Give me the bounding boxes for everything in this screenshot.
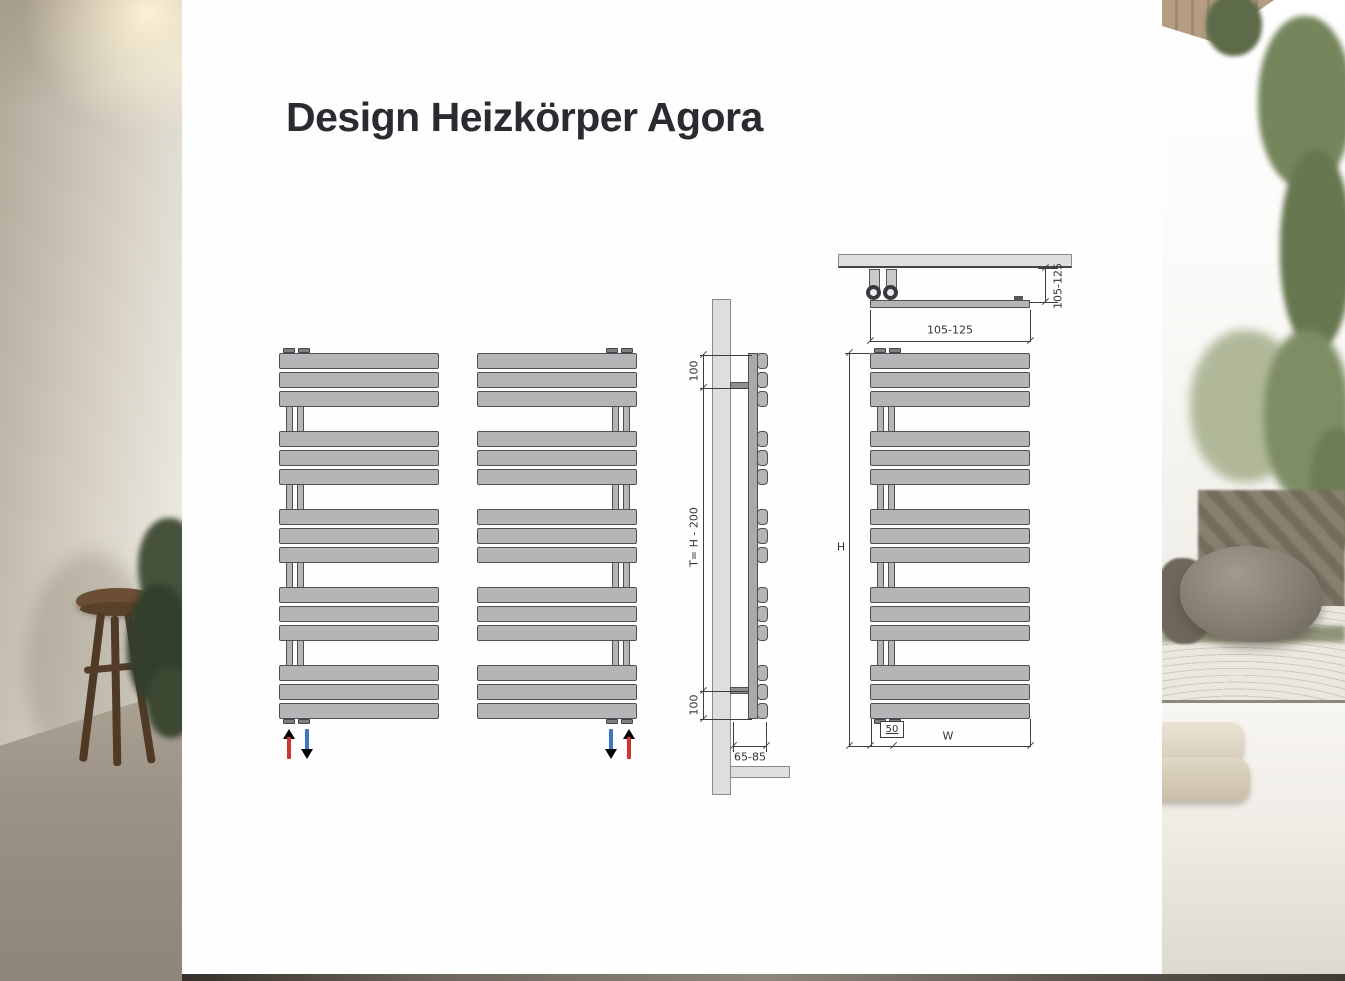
radiator-slat (279, 509, 439, 525)
radiator-slat (279, 547, 439, 563)
radiator-slat (870, 391, 1030, 407)
radiator-slat-profile (757, 703, 768, 719)
radiator-slat-profile (757, 606, 768, 622)
connector-tube (612, 406, 619, 432)
dim-label-total-width: W (943, 730, 954, 743)
extension-line (870, 310, 871, 342)
connector-tube (297, 640, 304, 666)
connector-tube (623, 640, 630, 666)
connector-tube (623, 562, 630, 588)
connection-nub (606, 719, 618, 724)
dim-label-height: H (837, 541, 845, 554)
connector-tube (297, 406, 304, 432)
radiator-slat-profile (757, 450, 768, 466)
radiator-slat-profile (757, 372, 768, 388)
radiator-slat (477, 391, 637, 407)
floor-section (730, 766, 790, 778)
connection-nub (889, 348, 901, 353)
radiator-slat (477, 684, 637, 700)
connector-tube (877, 562, 884, 588)
arrow-shaft (627, 737, 631, 759)
radiator-slat-profile (757, 528, 768, 544)
arrow-shaft (609, 729, 613, 751)
connector-tube (297, 562, 304, 588)
radiator-slat-profile (757, 665, 768, 681)
connector-tube (888, 484, 895, 510)
connection-nub (298, 719, 310, 724)
radiator-slat (870, 431, 1030, 447)
flow-return-down-arrow-icon (605, 729, 617, 759)
radiator-panel-top (870, 300, 1030, 308)
pipe-fitting-ring (866, 285, 881, 300)
dim-label-connection-spacing: 50 (886, 724, 899, 735)
flow-supply-up-arrow-icon (623, 729, 635, 759)
connector-tube (877, 640, 884, 666)
extension-line (766, 722, 767, 752)
technical-drawing-layer: Design Heizkörper Agora 100 T= H - 200 1… (0, 0, 1345, 981)
dim-label-top-width: 105-125 (927, 324, 973, 337)
radiator-slat (477, 587, 637, 603)
dimension-line (1045, 268, 1046, 303)
radiator-slat (477, 353, 637, 369)
radiator-slat (477, 450, 637, 466)
connection-nub (621, 719, 633, 724)
extension-line (700, 719, 752, 720)
radiator-slat (279, 587, 439, 603)
radiator-slat (279, 625, 439, 641)
dim-label-depth: 105-125 (1052, 263, 1065, 309)
radiator-slat (279, 391, 439, 407)
connection-nub (283, 348, 295, 353)
radiator-slat (870, 509, 1030, 525)
arrow-shaft (287, 737, 291, 759)
radiator-slat (279, 372, 439, 388)
arrow-head (605, 749, 617, 759)
radiator-slat-profile (757, 547, 768, 563)
connector-tube (888, 640, 895, 666)
connector-tube (623, 406, 630, 432)
radiator-slat (279, 684, 439, 700)
connector-tube (297, 484, 304, 510)
radiator-slat (279, 703, 439, 719)
radiator-slat-profile (757, 353, 768, 369)
dim-label-top-offset: 100 (688, 361, 701, 382)
radiator-slat (870, 587, 1030, 603)
connector-tube (286, 562, 293, 588)
extension-line (733, 722, 734, 752)
radiator-slat (870, 703, 1030, 719)
wall-section (838, 254, 1072, 268)
flow-supply-up-arrow-icon (283, 729, 295, 759)
connector-tube (877, 484, 884, 510)
radiator-slat (279, 665, 439, 681)
dimension-line (849, 353, 850, 746)
radiator-slat-profile (757, 625, 768, 641)
radiator-front-view-right (477, 353, 637, 719)
radiator-slat (870, 450, 1030, 466)
radiator-slat (477, 665, 637, 681)
connector-tube (877, 406, 884, 432)
radiator-slat (477, 469, 637, 485)
radiator-slat (279, 606, 439, 622)
dim-label-bracket-span: T= H - 200 (688, 507, 701, 567)
radiator-slat-profile (757, 587, 768, 603)
extension-line (700, 691, 748, 692)
extension-line (700, 355, 752, 356)
radiator-slat (477, 625, 637, 641)
arrow-head (301, 749, 313, 759)
dim-label-bottom-offset: 100 (688, 695, 701, 716)
page-title: Design Heizkörper Agora (286, 94, 763, 141)
extension-line (700, 388, 748, 389)
dim-box-connection-spacing: 50 (880, 721, 904, 738)
radiator-slat-profile (757, 469, 768, 485)
radiator-slat (870, 606, 1030, 622)
radiator-slat (477, 703, 637, 719)
radiator-slat-profile (757, 431, 768, 447)
connector-tube (888, 406, 895, 432)
connector-tube (612, 562, 619, 588)
connector-tube (286, 484, 293, 510)
dim-label-wall-clearance: 65-85 (734, 751, 766, 764)
connection-nub (621, 348, 633, 353)
connection-nub (298, 348, 310, 353)
radiator-slat (279, 450, 439, 466)
radiator-slat (477, 528, 637, 544)
connector-tube (888, 562, 895, 588)
radiator-slat-profile (757, 684, 768, 700)
dimension-line (849, 746, 1031, 747)
radiator-slat-profile (757, 509, 768, 525)
radiator-slat (279, 469, 439, 485)
radiator-front-view-dimensioned (870, 353, 1030, 719)
radiator-slat (279, 431, 439, 447)
connector-tube (623, 484, 630, 510)
pipe-fitting-ring (883, 285, 898, 300)
radiator-slat-profile (757, 391, 768, 407)
connector-tube (612, 484, 619, 510)
radiator-slat (477, 372, 637, 388)
connection-nub (606, 348, 618, 353)
radiator-slat (870, 547, 1030, 563)
radiator-slat (870, 625, 1030, 641)
connection-nub (283, 719, 295, 724)
radiator-slat (279, 528, 439, 544)
dimension-tick (1027, 337, 1034, 344)
connector-tube (612, 640, 619, 666)
dimension-line (733, 746, 767, 747)
radiator-slat (870, 469, 1030, 485)
flow-return-down-arrow-icon (301, 729, 313, 759)
radiator-slat (477, 606, 637, 622)
connector-tube (286, 406, 293, 432)
radiator-slat (477, 509, 637, 525)
dimension-line (703, 355, 704, 719)
radiator-slat (870, 372, 1030, 388)
radiator-slat (870, 353, 1030, 369)
radiator-front-view-left (279, 353, 439, 719)
radiator-slat (477, 431, 637, 447)
dimension-line (870, 341, 1031, 342)
connection-nub (874, 348, 886, 353)
dimension-tick (1027, 742, 1034, 749)
wall-section (712, 299, 731, 795)
extension-line (1030, 310, 1031, 342)
connection-nub (1014, 296, 1023, 301)
arrow-shaft (305, 729, 309, 751)
radiator-slat (477, 547, 637, 563)
slat-profile-column (757, 353, 769, 719)
radiator-slat (870, 684, 1030, 700)
radiator-slat (279, 353, 439, 369)
connector-tube (286, 640, 293, 666)
radiator-slat (870, 528, 1030, 544)
radiator-slat (870, 665, 1030, 681)
